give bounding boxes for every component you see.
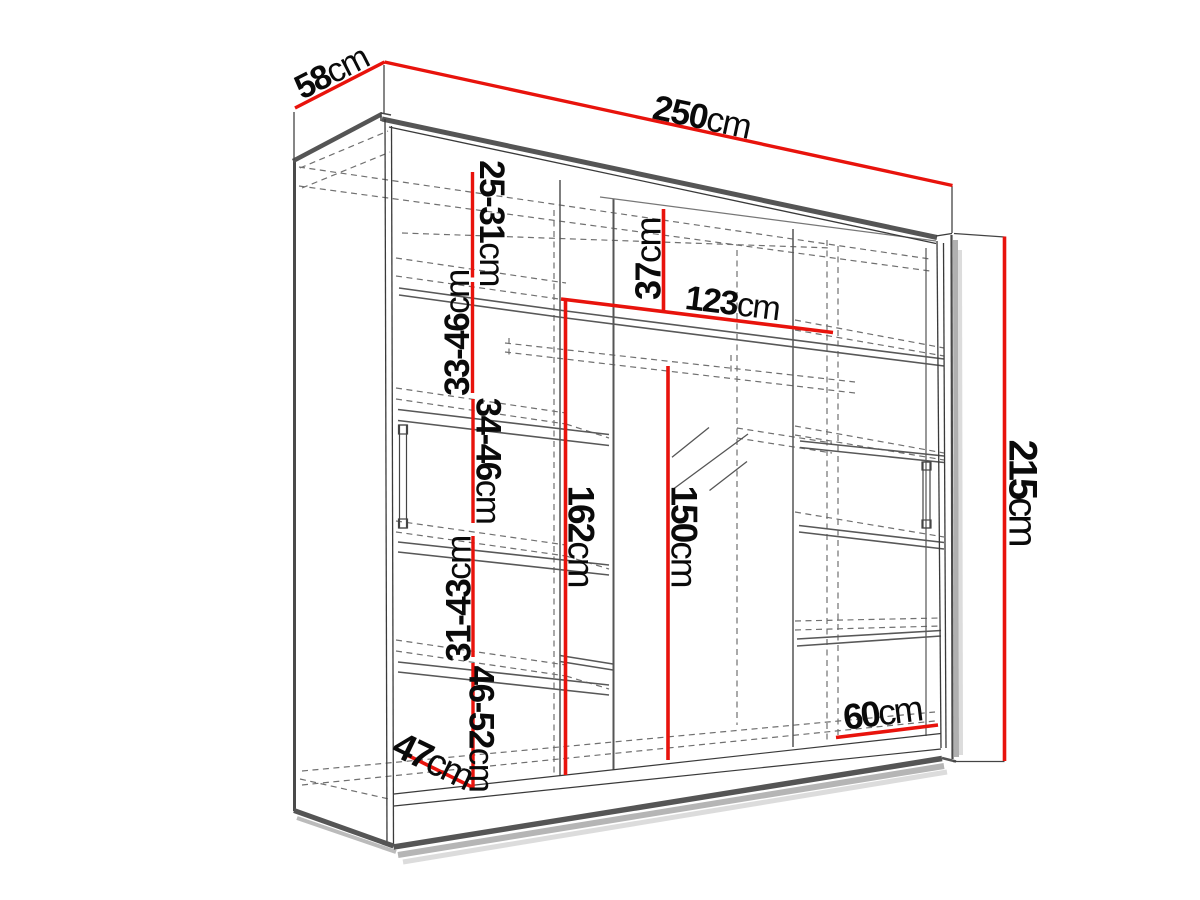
svg-text:150cm: 150cm [664, 485, 705, 586]
svg-text:215cm: 215cm [1001, 439, 1045, 545]
svg-text:33-46cm: 33-46cm [438, 270, 477, 396]
svg-text:34-46cm: 34-46cm [469, 398, 508, 524]
svg-text:31-43cm: 31-43cm [440, 536, 479, 662]
svg-text:37cm: 37cm [628, 218, 669, 300]
svg-text:25-31cm: 25-31cm [472, 160, 511, 286]
svg-text:162cm: 162cm [561, 485, 602, 586]
